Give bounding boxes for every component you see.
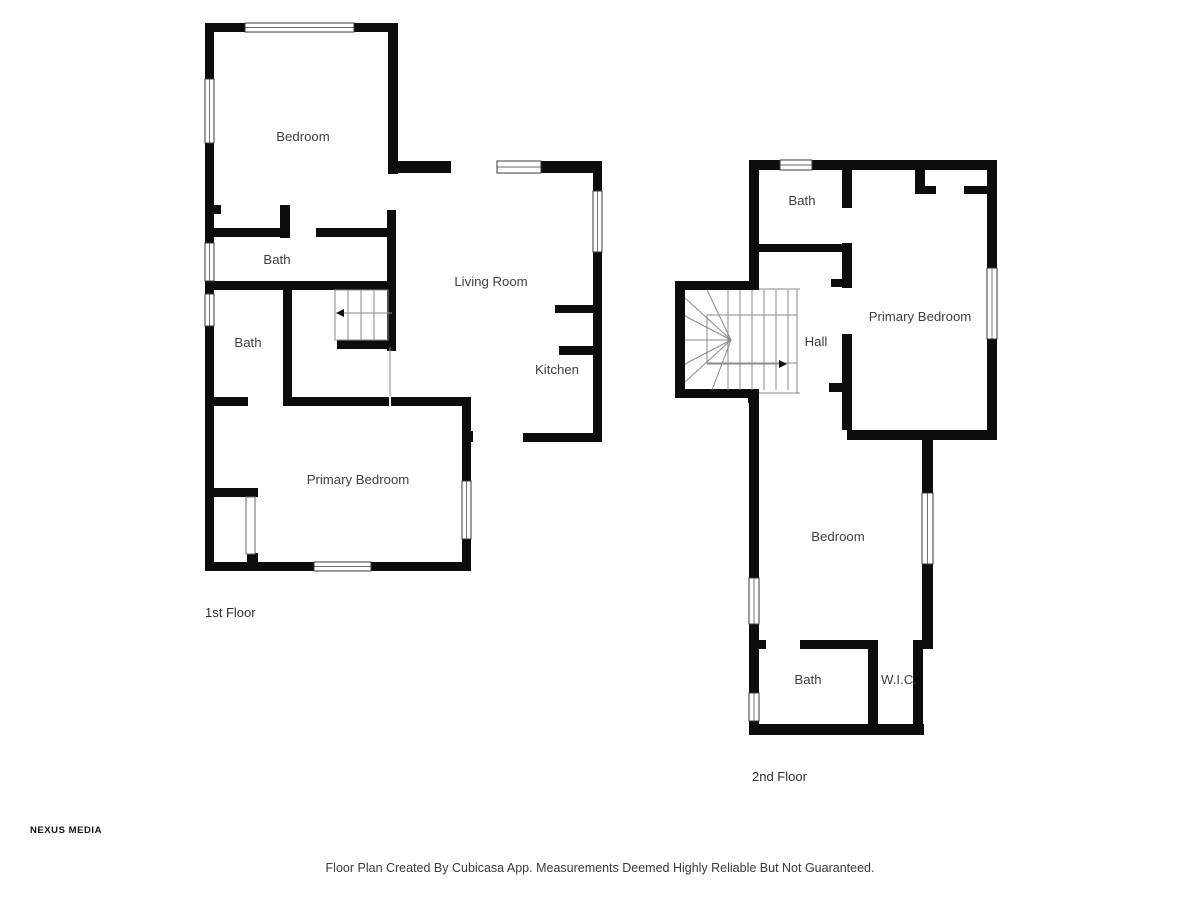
wall-segment <box>337 340 396 349</box>
wall-segment <box>523 433 602 442</box>
stair-direction-arrow <box>779 360 787 368</box>
wall-segment <box>749 624 759 693</box>
wall-segment <box>205 23 214 79</box>
room-label-primary-bedroom: Primary Bedroom <box>869 309 972 324</box>
floor-plan-canvas: BedroomBathBathLiving RoomKitchenPrimary… <box>0 0 1200 900</box>
floor-group-1: BedroomBathBathLiving RoomKitchenPrimary… <box>205 23 602 571</box>
wall-segment <box>757 244 845 252</box>
wall-segment <box>388 23 398 174</box>
floor-group-2: BathPrimary BedroomHallBedroomBathW.I.C. <box>675 160 997 735</box>
wall-segment <box>749 398 759 578</box>
wall-segment <box>559 346 602 355</box>
wall-segment <box>387 210 396 283</box>
wall-segment <box>842 334 852 430</box>
wall-segment <box>205 562 314 571</box>
wall-segment <box>842 243 852 288</box>
wall-segment <box>283 281 292 406</box>
wall-segment <box>829 383 842 392</box>
brand-logo: NEXUS MEDIA <box>30 825 102 836</box>
wall-segment <box>922 440 933 493</box>
room-label-primary-bedroom: Primary Bedroom <box>307 472 410 487</box>
room-label-bath: Bath <box>788 193 815 208</box>
wall-segment <box>749 724 924 735</box>
wall-segment <box>749 160 759 290</box>
wall-segment <box>749 640 766 649</box>
wall-segment <box>205 281 396 290</box>
wall-segment <box>812 160 997 170</box>
room-label-hall: Hall <box>805 334 828 349</box>
wall-segment <box>464 431 473 442</box>
room-label-bedroom: Bedroom <box>811 529 865 544</box>
wall-segment <box>593 173 602 191</box>
room-label-bath: Bath <box>263 252 290 267</box>
floor-plan-page: BedroomBathBathLiving RoomKitchenPrimary… <box>0 0 1200 900</box>
floor-label-2nd: 2nd Floor <box>752 769 807 784</box>
wall-segment <box>675 389 759 398</box>
room-label-w-i-c: W.I.C. <box>881 672 917 687</box>
wall-segment <box>800 640 878 649</box>
wall-segment <box>913 648 923 726</box>
wall-segment <box>964 186 987 194</box>
wall-segment <box>205 205 221 214</box>
wall-segment <box>371 562 471 571</box>
wall-segment <box>316 228 388 237</box>
wall-segment <box>541 161 602 173</box>
closet-door <box>246 497 255 554</box>
wall-segment <box>868 640 878 725</box>
wall-segment <box>283 397 471 406</box>
wall-segment <box>205 228 284 237</box>
room-label-living-room: Living Room <box>454 274 527 289</box>
wall-segment <box>555 305 602 313</box>
wall-segment <box>462 539 471 571</box>
stair-line <box>685 340 731 382</box>
stair-line <box>685 298 731 340</box>
room-label-bath: Bath <box>794 672 821 687</box>
footer-disclaimer: Floor Plan Created By Cubicasa App. Meas… <box>0 861 1200 875</box>
wall-segment <box>280 205 290 238</box>
stair-direction-arrow <box>336 309 344 317</box>
wall-segment <box>831 279 842 287</box>
room-label-bedroom: Bedroom <box>276 129 330 144</box>
wall-segment <box>205 488 258 497</box>
wall-segment <box>987 339 997 440</box>
wall-segment <box>915 186 936 194</box>
wall-segment <box>397 161 451 173</box>
wall-segment <box>842 170 852 208</box>
wall-segment <box>205 397 248 406</box>
room-label-bath: Bath <box>234 335 261 350</box>
wall-segment <box>675 281 685 398</box>
wall-segment <box>205 326 214 563</box>
wall-segment <box>922 564 933 649</box>
room-label-kitchen: Kitchen <box>535 362 579 377</box>
floor-label-1st: 1st Floor <box>205 605 256 620</box>
wall-segment <box>987 160 997 268</box>
wall-segment <box>847 430 995 440</box>
wall-segment <box>675 281 759 290</box>
